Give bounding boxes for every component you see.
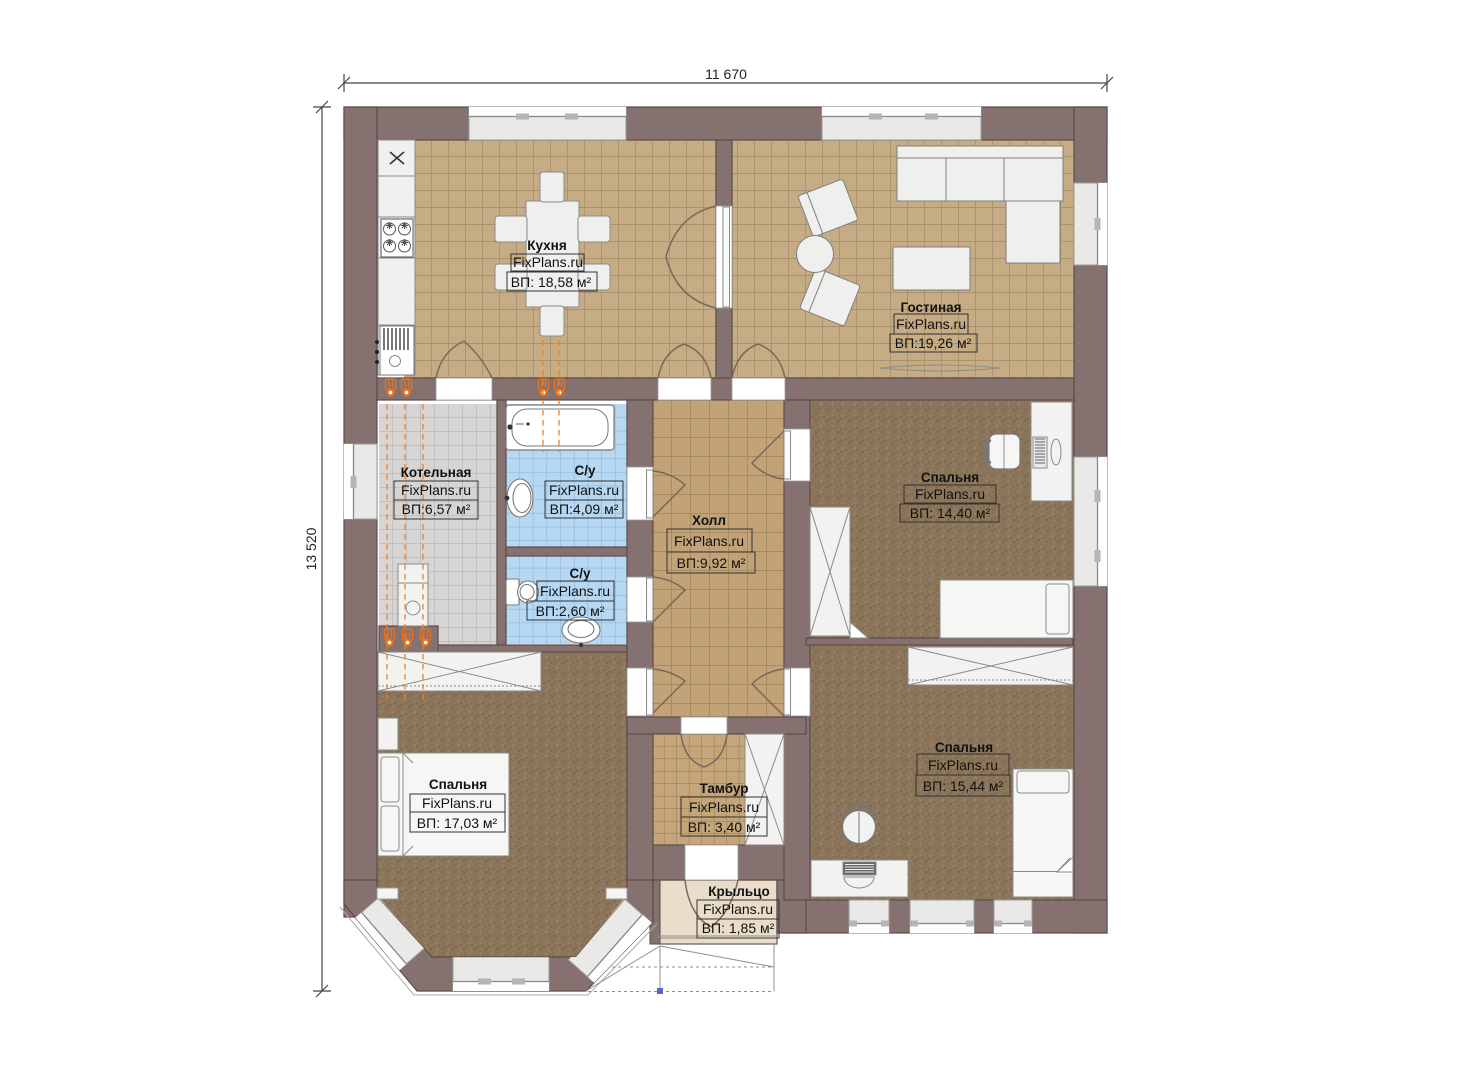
- svg-text:FixPlans.ru: FixPlans.ru: [928, 757, 998, 773]
- svg-text:FixPlans.ru: FixPlans.ru: [549, 482, 619, 498]
- svg-text:FixPlans.ru: FixPlans.ru: [422, 795, 492, 811]
- svg-text:Холл: Холл: [692, 513, 726, 528]
- svg-text:ВП: 1,85 м²: ВП: 1,85 м²: [702, 920, 775, 936]
- svg-text:ВП:4,09 м²: ВП:4,09 м²: [550, 501, 619, 517]
- svg-text:Спальня: Спальня: [429, 777, 487, 792]
- svg-text:FixPlans.ru: FixPlans.ru: [703, 901, 773, 917]
- svg-text:С/у: С/у: [569, 566, 591, 581]
- svg-text:ВП:6,57 м²: ВП:6,57 м²: [402, 501, 471, 517]
- svg-text:FixPlans.ru: FixPlans.ru: [674, 533, 744, 549]
- svg-text:FixPlans.ru: FixPlans.ru: [540, 583, 610, 599]
- svg-text:Спальня: Спальня: [921, 470, 979, 485]
- svg-text:ВП:2,60 м²: ВП:2,60 м²: [536, 603, 605, 619]
- svg-text:FixPlans.ru: FixPlans.ru: [896, 316, 966, 332]
- svg-text:ВП:19,26 м²: ВП:19,26 м²: [895, 335, 972, 351]
- svg-text:ВП:9,92 м²: ВП:9,92 м²: [677, 555, 746, 571]
- svg-text:Котельная: Котельная: [401, 465, 472, 480]
- svg-text:Спальня: Спальня: [935, 740, 993, 755]
- svg-text:ВП: 18,58 м²: ВП: 18,58 м²: [511, 274, 592, 290]
- svg-text:Тамбур: Тамбур: [700, 781, 749, 796]
- svg-text:ВП: 15,44 м²: ВП: 15,44 м²: [923, 778, 1004, 794]
- svg-text:13 520: 13 520: [303, 527, 319, 570]
- svg-text:ВП: 3,40 м²: ВП: 3,40 м²: [688, 819, 761, 835]
- svg-text:С/у: С/у: [574, 463, 596, 478]
- svg-text:Кухня: Кухня: [527, 238, 566, 253]
- svg-text:Крыльцо: Крыльцо: [708, 884, 769, 899]
- svg-text:FixPlans.ru: FixPlans.ru: [513, 254, 583, 270]
- svg-text:11 670: 11 670: [705, 66, 747, 82]
- svg-text:FixPlans.ru: FixPlans.ru: [689, 799, 759, 815]
- svg-text:Гостиная: Гостиная: [900, 300, 961, 315]
- svg-text:FixPlans.ru: FixPlans.ru: [401, 482, 471, 498]
- svg-text:ВП: 14,40 м²: ВП: 14,40 м²: [910, 505, 991, 521]
- svg-text:FixPlans.ru: FixPlans.ru: [915, 486, 985, 502]
- svg-text:ВП: 17,03 м²: ВП: 17,03 м²: [417, 815, 498, 831]
